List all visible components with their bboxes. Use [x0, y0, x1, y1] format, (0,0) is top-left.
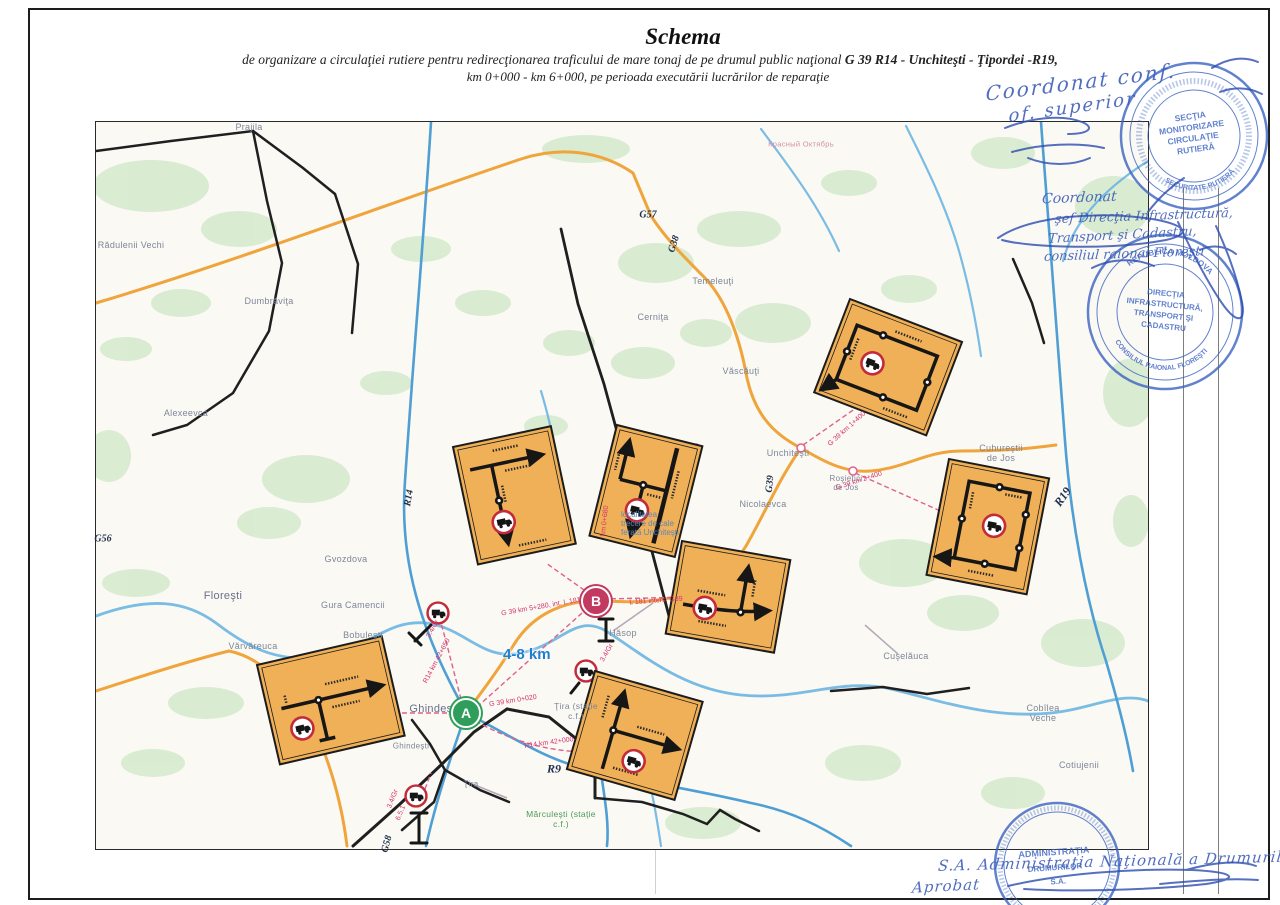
- town-label: Alexeevca: [164, 408, 208, 418]
- town-label: Cotiujenii: [1059, 760, 1099, 770]
- scanned-traffic-scheme-document: Schema de organizare a circulaţiei rutie…: [0, 0, 1280, 905]
- town-label: Красный Октябрь: [768, 140, 834, 149]
- town-label: Bobuleşti: [343, 630, 383, 640]
- town-label: Gvozdova: [325, 554, 368, 564]
- town-label: Văscăuţi: [723, 366, 760, 376]
- town-label: Dumbrăviţa: [244, 296, 293, 306]
- stamp-administratia-drumurilor: ADMINISTRAŢIA DRUMURILOR S.A.: [988, 796, 1127, 905]
- town-label: Gura Camencii: [321, 600, 385, 610]
- town-label: Mărculeşti (staţie c.f.): [526, 809, 596, 829]
- page-subtitle: de organizare a circulaţiei rutiere pent…: [150, 52, 1150, 68]
- town-label: Temeleuţi: [692, 276, 733, 286]
- no-trucks-sign-icon: [406, 786, 427, 807]
- road-label-r9: R9: [547, 762, 561, 777]
- svg-text:CONSILIUL RAIONAL FLOREŞTI: CONSILIUL RAIONAL FLOREŞTI: [1111, 338, 1210, 377]
- map-area: Prajila Rădulenii Vechi Dumbrăviţa Alexe…: [95, 121, 1149, 850]
- town-label: Hăsop: [609, 628, 637, 638]
- map-artwork: [96, 122, 1148, 849]
- detour-info-panel: [814, 299, 962, 435]
- detour-info-panel: [567, 671, 703, 800]
- handwritten-approval: Aprobat: [911, 875, 980, 897]
- page-title: Schema: [645, 24, 720, 50]
- town-label: Ţira (staţie c.f.): [554, 701, 598, 721]
- town-label: Rădulenii Vechi: [98, 240, 165, 250]
- handwritten-coordination-2: Coordonat: [1041, 189, 1117, 208]
- road-label-g39: G39: [764, 475, 777, 493]
- route-marker-a: A: [451, 698, 481, 728]
- town-label: Vărvăreuca: [228, 641, 277, 651]
- road-label-g56: G56: [94, 534, 111, 545]
- town-label: Prajila: [235, 122, 262, 132]
- town-label: Cerniţa: [637, 312, 668, 322]
- town-label: Floreşti: [204, 590, 242, 602]
- detour-info-panel: [453, 426, 576, 564]
- stamp-directia-infrastructura: REPUBLICA MOLDOVA CONSILIUL RAIONAL FLOR…: [1077, 224, 1253, 400]
- page-subtitle-km: km 0+000 - km 6+000, pe perioada execută…: [467, 69, 830, 85]
- detour-info-panel: [926, 459, 1049, 594]
- detour-info-panel: [666, 541, 791, 653]
- town-label: Ghindeşti: [393, 742, 430, 751]
- town-label: Unchiteşti: [767, 448, 810, 458]
- subtitle-normal: de organizare a circulaţiei rutiere pent…: [242, 52, 845, 67]
- svg-text:ADMINISTRAŢIA DRUMURILOR: ADMINISTRAŢIA DRUMURILOR S.A.: [1018, 839, 1096, 888]
- svg-text:SECŢIA MONITORIZARE: SECŢIA MONITORIZARE CIRCULAŢIE RUTIERĂ: [1157, 107, 1230, 159]
- svg-text:DIRECŢIA INFRASTRUCTURĂ,: DIRECŢIA INFRASTRUCTURĂ, TRANSPORT ŞI CA…: [1124, 285, 1207, 335]
- town-label: Cuhureştii de Jos: [979, 443, 1023, 463]
- town-label: Ţira: [464, 780, 479, 789]
- town-label: Cobîlea Veche: [1026, 703, 1059, 723]
- road-label-g57: G57: [639, 210, 656, 221]
- town-label: Cuşelăuca: [883, 651, 928, 661]
- stamp-monitorizare-circulatie: SECURITATE RUTIERĂ SECŢIA MONITORIZARE C…: [1108, 50, 1280, 222]
- town-label: Nicolaevca: [739, 499, 786, 509]
- detour-info-panel: [589, 425, 702, 557]
- route-marker-b: B: [581, 586, 611, 616]
- subtitle-road-ids: G 39 R14 - Unchiteşti - Ţipordei -R19,: [845, 52, 1058, 67]
- distance-label: 4-8 km: [503, 646, 551, 663]
- railway-crossing-note: localitatea trecere de cale ferată Unchi…: [621, 510, 679, 537]
